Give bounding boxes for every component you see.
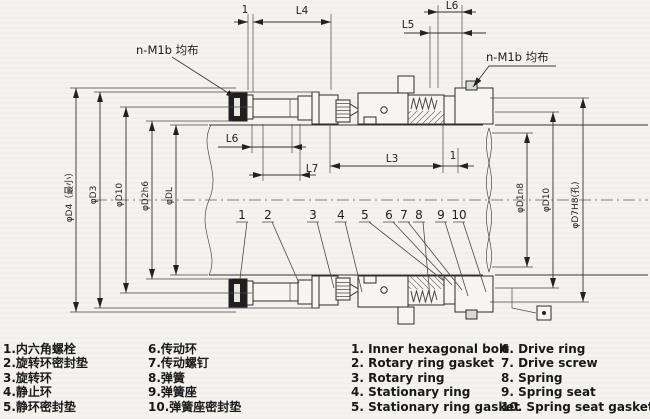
- dim-label-l4: L4: [296, 5, 309, 17]
- dim-label-l5: L5: [402, 19, 415, 31]
- dim-label-d4: φD4（最小）: [64, 168, 75, 223]
- collar-set-screw: [466, 81, 477, 90]
- screw-hole: [381, 107, 387, 113]
- callout-4: 4: [337, 208, 345, 222]
- dim-label-dl: φDL: [165, 187, 175, 205]
- legend-item: 1. Inner hexagonal bolt: [351, 342, 520, 356]
- legend-item: 3. Rotary ring: [351, 371, 520, 385]
- dim-label-d3: φD3: [89, 186, 99, 205]
- callout-9: 9: [437, 208, 445, 222]
- dim-label-d10-left: φD10: [115, 183, 125, 208]
- legend-item: 9. Spring seat: [501, 385, 650, 399]
- dim-label-1-mid: 1: [450, 150, 457, 162]
- legend-zh-col1: 1.内六角螺栓 2.旋转环密封垫 3.旋转环 4.静止环 5.静环密封垫: [3, 342, 88, 414]
- legend-item: 10.弹簧座密封垫: [148, 400, 241, 414]
- legend-en-col1: 1. Inner hexagonal bolt 2. Rotary ring g…: [351, 342, 520, 414]
- dim-label-l3: L3: [386, 153, 399, 165]
- callout-8: 8: [415, 208, 423, 222]
- gland-hatched: [319, 95, 338, 124]
- dim-label-l6-top: L6: [446, 0, 459, 12]
- ring-notch: [364, 117, 376, 124]
- callout-5: 5: [361, 208, 369, 222]
- legend-item: 6. Drive ring: [501, 342, 650, 356]
- spacer-ring: [444, 96, 455, 124]
- dim-label-l6-mid: L6: [226, 133, 239, 145]
- dim-label-l7: L7: [306, 163, 319, 175]
- shaft-break-right-b: [486, 128, 491, 272]
- seal-bottom-half: [229, 276, 493, 324]
- legend-en-col2: 6. Drive ring 7. Drive screw 8. Spring 9…: [501, 342, 650, 414]
- legend-item: 8. Spring: [501, 371, 650, 385]
- legend-item: 8.弹簧: [148, 371, 241, 385]
- legend-item: 7. Drive screw: [501, 356, 650, 370]
- callout-7: 7: [400, 208, 408, 222]
- gland-plate: [312, 92, 319, 124]
- spring-seat-collar: [455, 88, 493, 124]
- legend-item: 7.传动螺钉: [148, 356, 241, 370]
- dim-label-d10-right: φD10: [542, 188, 552, 213]
- bolt-shank: [253, 99, 298, 117]
- dim-label-d2h6: φD2h6: [141, 181, 151, 211]
- callout-2: 2: [264, 208, 272, 222]
- drive-screw: [398, 76, 414, 93]
- legend-item: 5.静环密封垫: [3, 400, 88, 414]
- dim-label-d1n8: φD1n8: [516, 183, 526, 213]
- callout-6: 6: [385, 208, 393, 222]
- bolt-note-right: n-M1b 均布: [486, 50, 549, 64]
- legend-item: 9.弹簧座: [148, 385, 241, 399]
- legend-zh-col2: 6.传动环 7.传动螺钉 8.弹簧 9.弹簧座 10.弹簧座密封垫: [148, 342, 241, 414]
- legend-item: 1.内六角螺栓: [3, 342, 88, 356]
- legend-item: 3.旋转环: [3, 371, 88, 385]
- mechanical-seal-drawing-page: 1 L4 L5 L6 L6 L7 L3 1 φD4（最小） φD3 φD10 φ…: [0, 0, 650, 419]
- rotary-ring-gasket: [336, 100, 350, 122]
- callout-10: 10: [451, 208, 466, 222]
- bolt-note-left: n-M1b 均布: [136, 43, 199, 57]
- dim-label-1-top: 1: [242, 4, 249, 16]
- legend-item: 10. Spring seat gasket: [501, 400, 650, 414]
- bottom-detail: [512, 288, 551, 320]
- legend-item: 5. Stationary ring gasket: [351, 400, 520, 414]
- dim-label-d7h8: φD7H8(孔): [570, 181, 581, 228]
- legend-item: 4.静止环: [3, 385, 88, 399]
- legend-item: 2.旋转环密封垫: [3, 356, 88, 370]
- callout-1: 1: [238, 208, 246, 222]
- legend-item: 2. Rotary ring gasket: [351, 356, 520, 370]
- shaft: [95, 125, 648, 275]
- callout-3: 3: [309, 208, 317, 222]
- legend-item: 6.传动环: [148, 342, 241, 356]
- legend-item: 4. Stationary ring: [351, 385, 520, 399]
- bolt-step: [298, 96, 312, 120]
- seal-top-half: [229, 76, 493, 124]
